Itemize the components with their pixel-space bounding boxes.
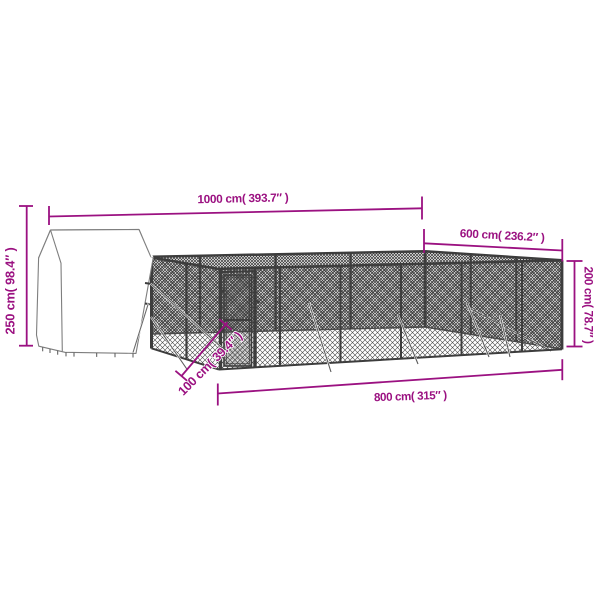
svg-text:1000 cm( 393.7″ ): 1000 cm( 393.7″ ) bbox=[197, 190, 289, 206]
svg-text:250 cm( 98.4″ ): 250 cm( 98.4″ ) bbox=[3, 247, 18, 334]
svg-text:800 cm( 315″ ): 800 cm( 315″ ) bbox=[374, 389, 448, 405]
svg-text:200 cm( 78.7″ ): 200 cm( 78.7″ ) bbox=[582, 266, 596, 344]
